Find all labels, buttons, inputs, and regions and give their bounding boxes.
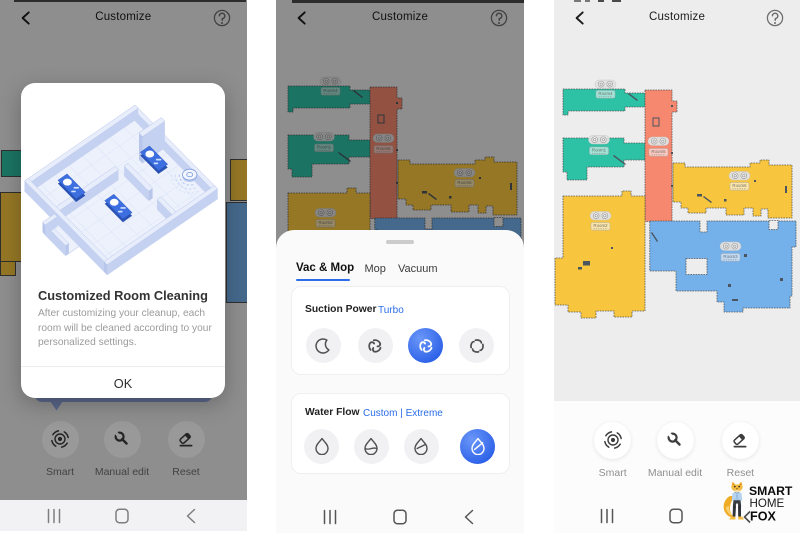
svg-text:SMART: SMART bbox=[749, 484, 793, 498]
svg-text:FOX: FOX bbox=[750, 510, 776, 524]
svg-text:HOME: HOME bbox=[750, 497, 785, 510]
